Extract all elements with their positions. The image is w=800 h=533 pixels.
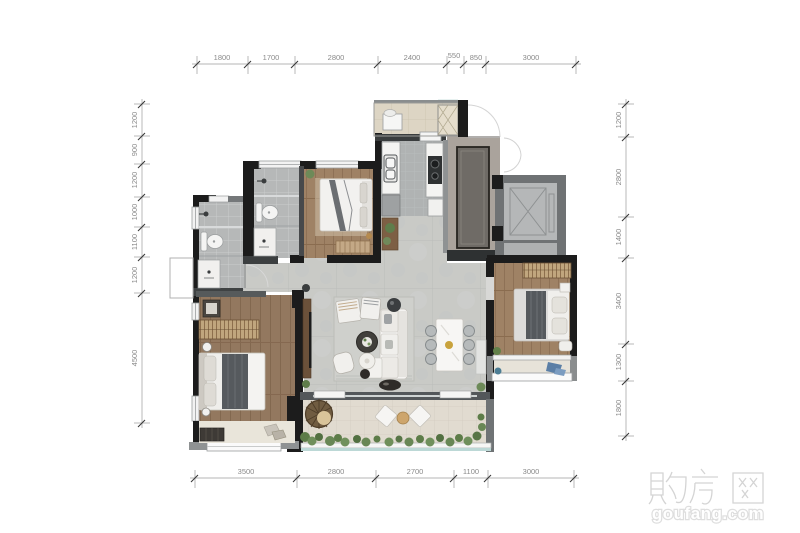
svg-text:goufang.com: goufang.com — [652, 504, 764, 523]
svg-text:1800: 1800 — [214, 53, 231, 62]
svg-text:550: 550 — [448, 51, 461, 60]
svg-text:1100: 1100 — [130, 234, 139, 250]
svg-text:2700: 2700 — [407, 467, 424, 476]
svg-text:900: 900 — [130, 144, 139, 157]
svg-text:3500: 3500 — [238, 467, 255, 476]
svg-text:2800: 2800 — [614, 169, 623, 186]
svg-text:3400: 3400 — [614, 293, 623, 310]
svg-text:850: 850 — [470, 53, 483, 62]
svg-text:1700: 1700 — [263, 53, 280, 62]
svg-text:1100: 1100 — [463, 467, 479, 476]
svg-text:4500: 4500 — [130, 350, 139, 367]
svg-text:2400: 2400 — [404, 53, 421, 62]
svg-text:1400: 1400 — [614, 229, 623, 246]
svg-text:3000: 3000 — [523, 467, 540, 476]
svg-text:1200: 1200 — [130, 112, 139, 129]
svg-text:1800: 1800 — [614, 400, 623, 417]
svg-text:3000: 3000 — [523, 53, 540, 62]
svg-text:1200: 1200 — [130, 267, 139, 284]
svg-text:2800: 2800 — [328, 467, 345, 476]
svg-text:1000: 1000 — [130, 204, 139, 221]
svg-text:1200: 1200 — [614, 112, 623, 129]
svg-text:1300: 1300 — [614, 354, 623, 371]
svg-text:1200: 1200 — [130, 172, 139, 189]
svg-text:2800: 2800 — [328, 53, 345, 62]
